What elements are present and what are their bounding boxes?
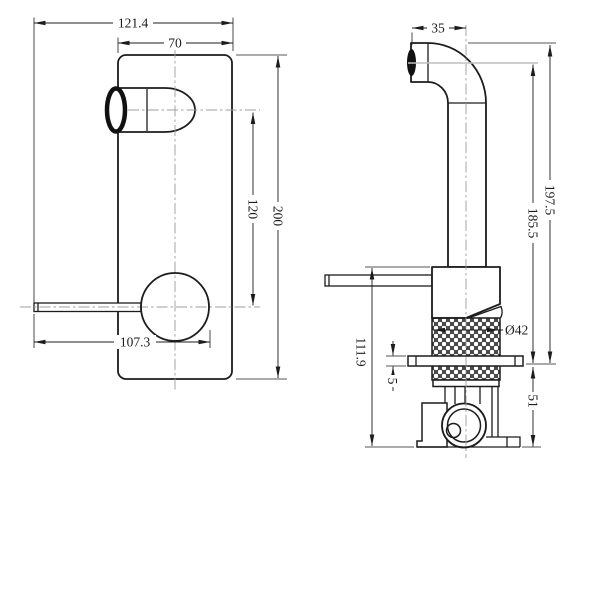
dim-label-overall-width: 121.4 [118,16,149,31]
dim-spout-to-handle: 120 [246,113,261,306]
side-spout-and-riser [411,43,486,267]
drawing-sheet: 121.4 70 200 120 [0,0,600,600]
dim-label-plate-thickness: 5 [385,378,400,385]
dim-label-lever-reach: 107.3 [120,335,151,350]
dim-plate-height: 200 [236,55,287,379]
dim-lever-reach: 107.3 [34,314,210,350]
side-lever-handle [325,275,432,286]
dim-label-plate-width: 70 [168,36,182,51]
front-view: 121.4 70 200 120 [20,16,287,391]
dim-concealed-depth: 51 [522,367,541,447]
dim-label-spout-to-handle: 120 [246,199,261,220]
dim-overall-width: 121.4 [34,16,233,304]
dim-plate-width: 70 [118,36,233,54]
dim-spout-outlet-height: 185.5 [526,65,541,364]
technical-drawing-canvas: 121.4 70 200 120 [0,0,600,600]
side-mounting-foot [486,437,520,447]
dim-spout-depth: 35 [412,21,466,46]
dim-label-concealed-depth: 51 [526,394,541,408]
front-spout-aerator-ring [107,89,125,132]
dim-label-plate-height: 200 [271,206,286,227]
side-view: 35 197.5 185.5 51 [325,21,558,459]
dim-label-handle-to-bottom: 111.9 [354,337,369,367]
dim-plate-thickness: 5 [385,341,406,391]
side-wall-plate-edge [408,356,523,366]
dim-label-spout-depth: 35 [431,21,445,36]
dim-label-valve-diameter: Ø42 [505,323,528,338]
dim-label-spout-top-height: 197.5 [543,185,558,216]
dim-label-spout-outlet-height: 185.5 [526,208,541,239]
